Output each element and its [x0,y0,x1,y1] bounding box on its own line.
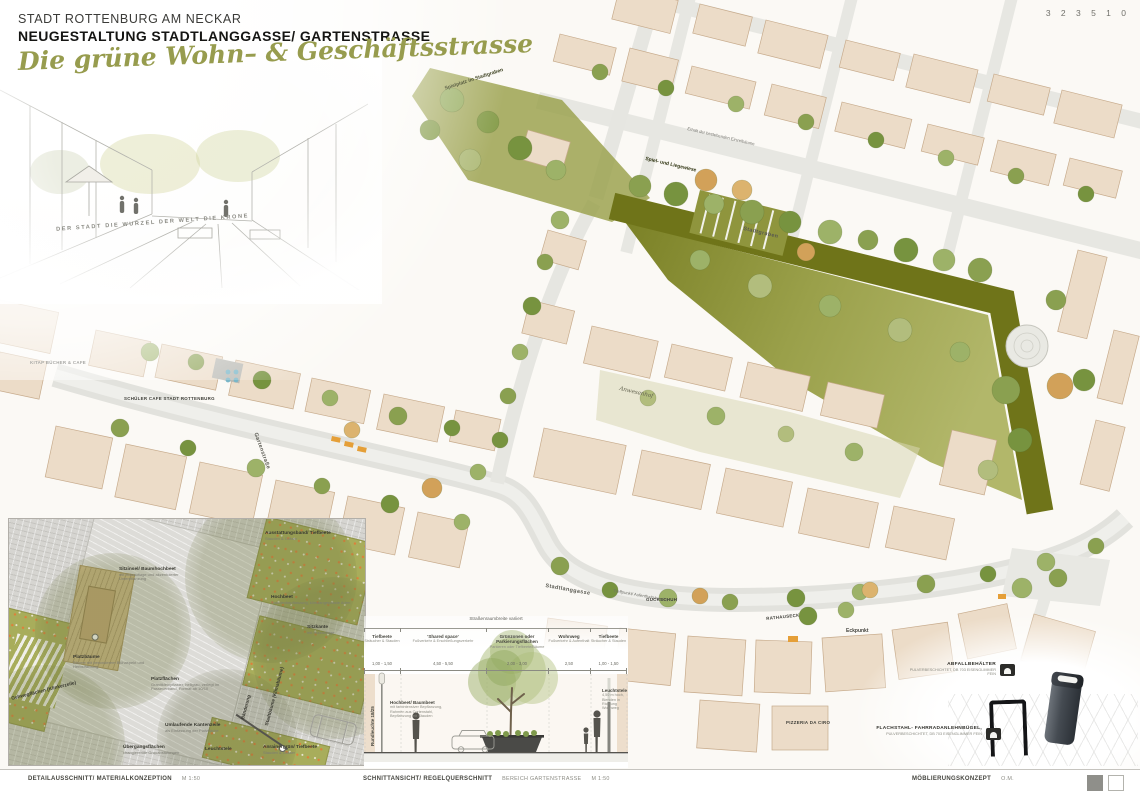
section-zone-dim: 1,00 - 1,50 [364,661,400,666]
section-zone-label: TiefbeeteSträucher & Stauden [364,634,400,644]
dim-tick [626,628,627,632]
dim-tick [486,668,487,674]
detail-labels: Sitzinsel/ Baumhochbeetmit Holzauflage u… [9,519,365,765]
trash-bin-label-sub: PULVERBESCHICHTET, DB 703 EISENGLIMMER F… [902,668,996,677]
dim-tick [590,668,591,674]
detail-label: Umlaufende Kantenzeileals Einfassung der… [165,723,220,733]
section-zone-dim: 2,50 [548,661,590,666]
detail-label: Sitzinsel/ Baumhochbeetmit Holzauflage u… [119,567,205,582]
cross-section: Straßenraumbreite variiert TiefbeeteSträ… [364,616,628,768]
section-overall-dimline [364,628,627,629]
competition-board: Spielplatz im StadtgrabenSpiel- und Lieg… [0,0,1140,800]
dim-tick [400,668,401,674]
detail-label: Gehwegflächen (Klinkerzeile) [11,681,77,702]
section-zone-label: TiefbeeteSträucher & Stauden [590,634,627,644]
dim-tick [548,668,549,674]
board-number: 3 2 3 5 1 0 [1046,8,1130,18]
detail-label: HochbeetStaudenbepflanzung, klimaangepas… [271,595,350,605]
section-annotation: Hochbeet/ Baumbeetmit farbintensiver Bep… [390,700,454,718]
section-dimline [364,670,627,671]
footer-furniture-author: O.M. [1001,776,1014,782]
section-zone-dim: 2,00 - 3,00 [486,661,548,666]
section-zone-dim: 1,00 - 1,50 [590,661,627,666]
section-zone-dim: 4,50 - 5,50 [400,661,486,666]
furniture-concept: ABFALLBEHÄLTER PULVERBESCHICHTET, DB 703… [878,628,1140,769]
section-annotation: Rundleuchte 18/25 [370,706,375,746]
title-city: STADT ROTTENBURG AM NECKAR [18,12,533,26]
footer-section-scale: M 1:50 [591,776,609,782]
detail-label: Bänderung [241,695,253,721]
dim-tick [364,628,365,632]
footer-furniture-section: MÖBLIERUNGSKONZEPT O.M. [912,776,1014,782]
section-zone-label: WohnwegFußverkehr & Aufenthalt [548,634,590,644]
section-annotation: Leuchtstele4,50 m hoch, Blenden in Richt… [602,688,628,711]
scale-square-filled [1087,775,1103,791]
bike-rack-label-sub: PULVERBESCHICHTET, DB 703 EISENGLIMMER F… [870,732,982,737]
detail-label: Anrainergrün/ TiefbeeteStauden & Gräser [263,745,317,755]
scale-square-outline [1108,775,1124,791]
footer-furniture-title: MÖBLIERUNGSKONZEPT [912,776,991,782]
detail-label: PlatzbäumeBäume mit besonderem Blühaspek… [73,655,159,670]
manufacturer-logo-icon [1000,664,1015,676]
detail-label: Stadtbäume (Klimabäume) [265,667,286,727]
section-zone-label: Grünzonen oder ParkierungsflächenParkier… [486,634,548,649]
perspective-sketch: DER STADT DIE WURZEL DER WELT DIE KRONE [0,52,368,290]
footer-detail-title: DETAILAUSSCHNITT/ MATERIALKONZEPTION [28,776,172,782]
footer-section-area: BEREICH GARTENSTRASSE [502,776,581,782]
detail-label: Ausstattungsband/ TiefbeeteStauden & Grä… [265,531,331,541]
dim-tick [486,628,487,632]
detail-label: Sitzkantemit Holzauflage [307,625,335,635]
detail-inset: Sitzinsel/ Baumhochbeetmit Holzauflage u… [8,518,366,766]
dim-tick [400,628,401,632]
manufacturer-logo-icon [986,728,1001,740]
detail-label: Übergangsflächenchangierende Grauabstufu… [123,745,179,755]
footer-section-title: SCHNITTANSICHT/ REGELQUERSCHNITT [363,776,492,782]
detail-label: Leuchtstele [205,747,232,753]
dim-tick [548,628,549,632]
section-note: Straßenraumbreite variiert [364,616,628,621]
dim-tick [364,668,365,674]
dim-tick [626,668,627,674]
detail-label: PlatzflächenGranitkleinpflaster, hellgra… [151,677,237,692]
footer-detail-section: DETAILAUSSCHNITT/ MATERIALKONZEPTION M 1… [28,776,200,782]
trash-bin-label: ABFALLBEHÄLTER PULVERBESCHICHTET, DB 703… [902,662,996,677]
sketch-fade [0,38,382,304]
footer-section-section: SCHNITTANSICHT/ REGELQUERSCHNITT BEREICH… [363,776,610,782]
bike-rack-label-title: FLACHSTAHL- FAHRRADANLEHNBÜGEL, [870,726,982,732]
bike-rack-label: FLACHSTAHL- FAHRRADANLEHNBÜGEL, PULVERBE… [870,726,982,736]
footer-scale-squares [1087,775,1124,791]
footer-detail-scale: M 1:50 [182,776,200,782]
dim-tick [590,628,591,632]
section-zone-label: 'Shared space'Fußverkehr & Erschließungs… [400,634,486,644]
title-block: STADT ROTTENBURG AM NECKAR NEUGESTALTUNG… [18,12,533,76]
footer-bar: DETAILAUSSCHNITT/ MATERIALKONZEPTION M 1… [0,769,1140,800]
